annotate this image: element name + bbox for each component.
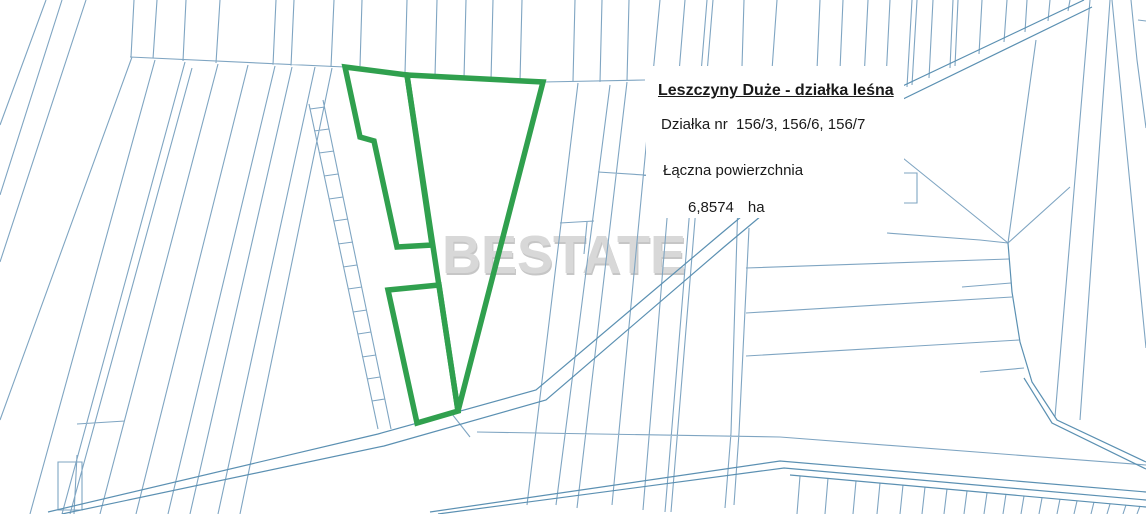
cadastral-lines — [0, 0, 1146, 514]
total-area-value: 6,8574ha — [663, 182, 765, 233]
total-area-label: Łączna powierzchnia — [663, 162, 803, 179]
parcel-numbers: Działka nr 156/3, 156/6, 156/7 — [661, 116, 865, 133]
cadastral-map-view: BESTATE Leszczyny Duże - działka leśna D… — [0, 0, 1146, 514]
highlighted-parcel-outline — [345, 67, 543, 423]
cadastral-map-canvas — [0, 0, 1146, 514]
area-unit: ha — [748, 199, 765, 216]
parcel-lower-left-strip — [388, 285, 458, 423]
road-lines — [48, 0, 1146, 514]
area-number: 6,8574 — [688, 199, 734, 216]
listing-title: Leszczyny Duże - działka leśna — [658, 82, 894, 100]
parcel-info-panel: Leszczyny Duże - działka leśna Działka n… — [646, 66, 904, 218]
